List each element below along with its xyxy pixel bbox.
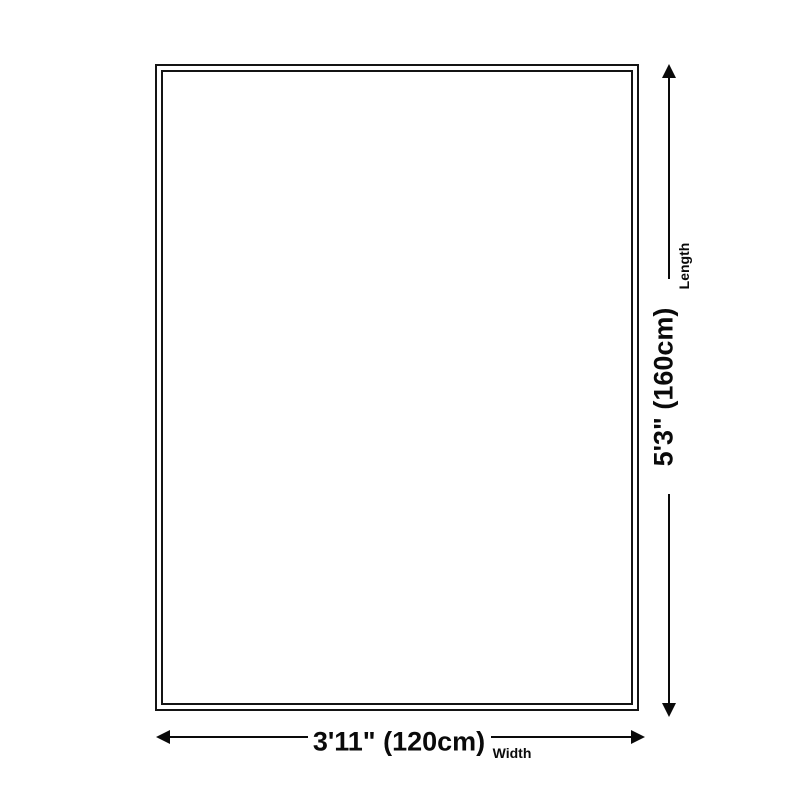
width-line-left-segment	[168, 736, 308, 738]
length-label: Length	[676, 243, 692, 290]
width-label: Width	[493, 745, 532, 761]
size-diagram: Length 5'3" (160cm) 3'11" (120cm) Width	[0, 0, 800, 800]
length-line-lower-segment	[668, 494, 670, 705]
arrow-right-icon	[631, 730, 645, 744]
width-line-right-segment	[491, 736, 632, 738]
width-value: 3'11" (120cm)	[313, 727, 485, 758]
rug-outline	[155, 64, 639, 711]
length-value: 5'3" (160cm)	[649, 308, 680, 467]
arrow-down-icon	[662, 703, 676, 717]
rug-inner-border	[161, 70, 633, 705]
length-line-upper-segment	[668, 76, 670, 279]
